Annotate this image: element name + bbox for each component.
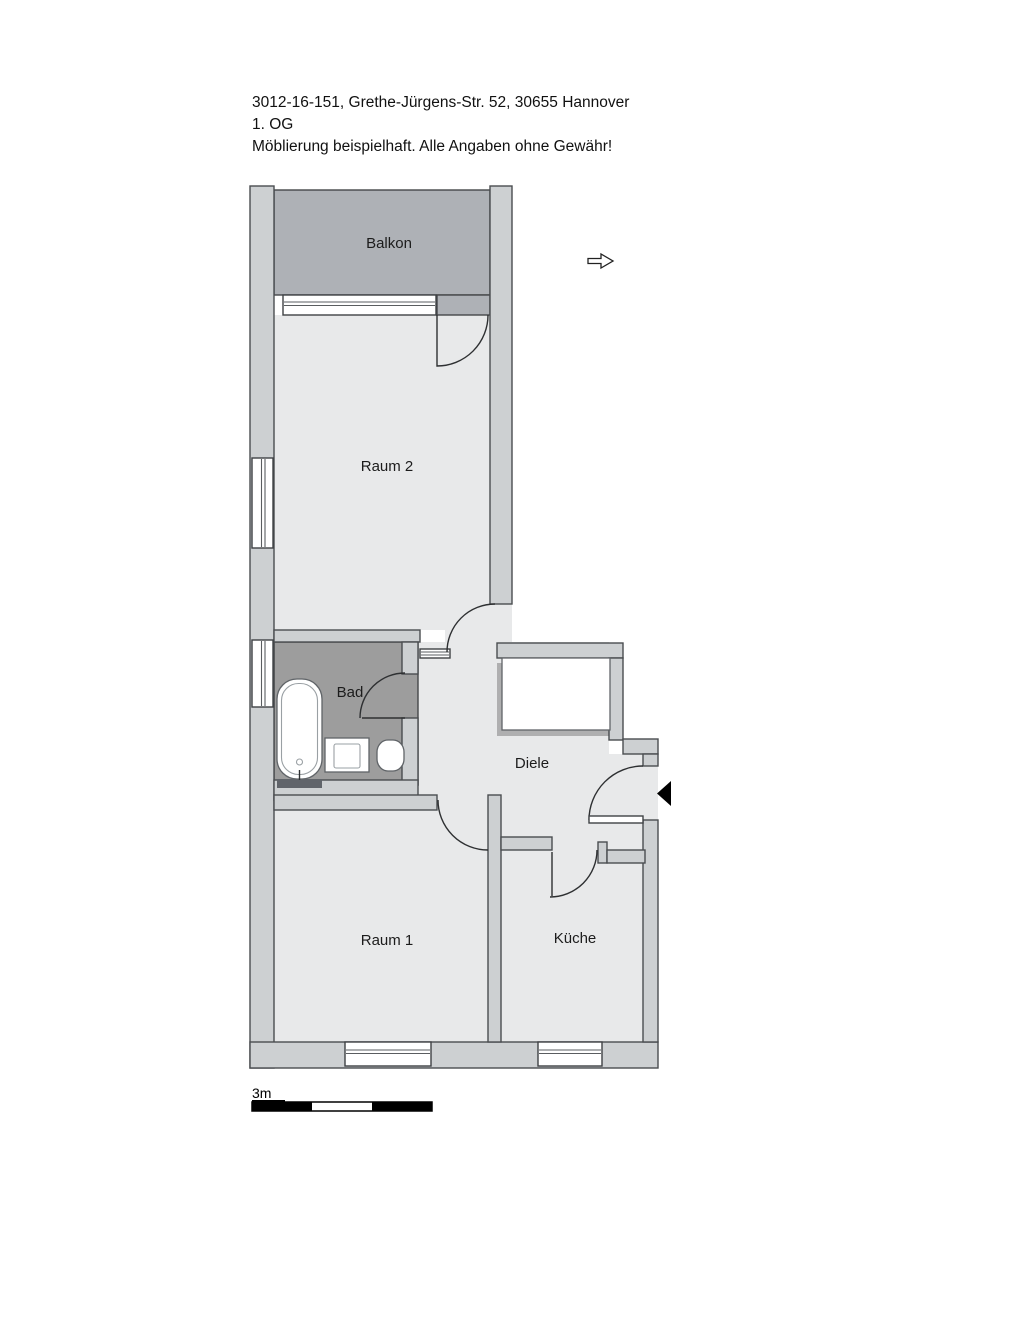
hall-entrance-area <box>488 754 643 850</box>
balcony-door-panel <box>437 295 490 315</box>
entrance-arrow-icon <box>657 781 671 806</box>
wall-raum2-right <box>490 186 512 604</box>
room-raum1-floor <box>274 810 488 1042</box>
wall-outer-left <box>250 186 274 1068</box>
wall-entrance-stub <box>643 754 658 766</box>
bathtub-shadow <box>277 779 322 788</box>
wc-icon <box>377 740 404 771</box>
balcony-window <box>283 295 436 315</box>
label-kueche: Küche <box>554 930 597 947</box>
entrance-threshold <box>643 766 658 820</box>
raum1-window <box>345 1042 431 1066</box>
entrance-door-leaf <box>589 816 643 823</box>
scale-bar: 3m <box>252 1085 432 1111</box>
label-bad: Bad <box>337 684 364 701</box>
scale-bar-segment-1 <box>252 1102 312 1111</box>
wall-kueche-top-left <box>501 837 552 850</box>
raum2-window <box>252 458 273 548</box>
wall-kueche-top-right <box>607 850 645 863</box>
wall-kueche-jog-vertical <box>598 842 607 863</box>
label-diele: Diele <box>515 755 549 772</box>
wall-bad-top <box>274 630 420 642</box>
label-raum2: Raum 2 <box>361 458 414 475</box>
wall-raum1-kueche-divider <box>488 795 501 1042</box>
bathtub-icon <box>277 679 322 780</box>
wall-diele-top <box>497 643 623 658</box>
floorplan-drawing: Balkon Raum 2 Bad Diele Raum 1 Küche 3m <box>0 0 1024 1344</box>
bad-window <box>252 640 273 707</box>
hall-doorway-raum1 <box>437 795 488 812</box>
kueche-window <box>538 1042 602 1066</box>
wall-bad-right-upper <box>402 642 418 674</box>
wardrobe-body <box>502 658 610 730</box>
label-raum1: Raum 1 <box>361 932 414 949</box>
scale-label: 3m <box>252 1085 271 1101</box>
wardrobe <box>497 658 610 736</box>
diele-sidelight-window <box>420 649 450 658</box>
washbasin-icon <box>325 738 369 772</box>
wall-raum1-top <box>274 795 437 810</box>
wall-diele-right <box>609 658 623 740</box>
scale-bar-segment-3 <box>372 1102 432 1111</box>
north-arrow-icon <box>588 254 613 268</box>
wall-step <box>623 739 658 754</box>
label-balkon: Balkon <box>366 235 412 252</box>
